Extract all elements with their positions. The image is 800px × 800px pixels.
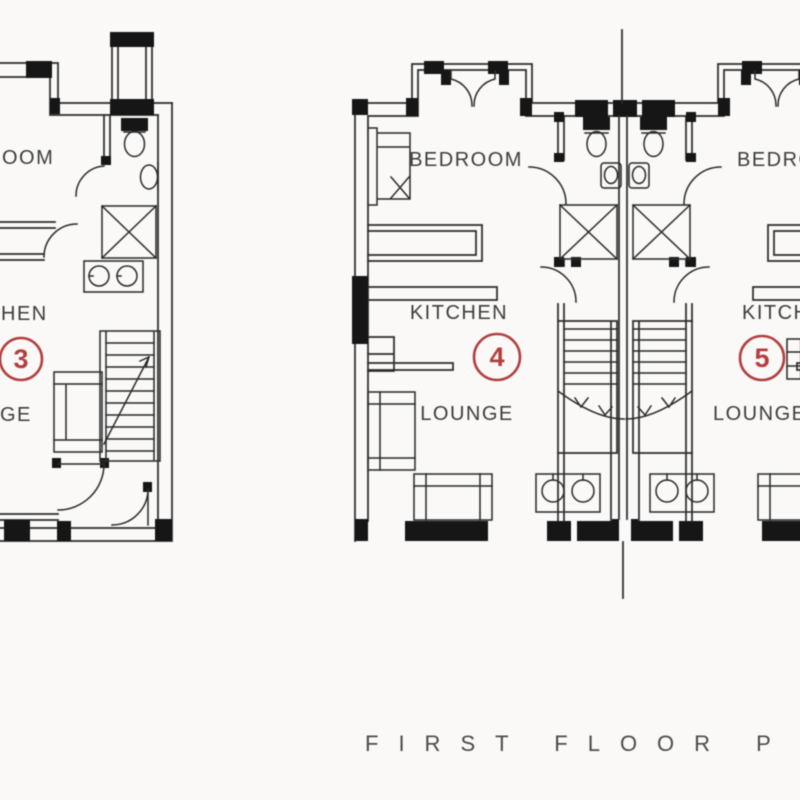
unit3-bedroom-label: OOM xyxy=(2,147,54,169)
unit4-number: 4 xyxy=(489,342,504,372)
unit4-bedroom-label: BEDROOM xyxy=(409,149,523,171)
unit4-kitchen-label: KITCHEN xyxy=(410,302,508,324)
unit3-kitchen-label: HEN xyxy=(1,303,48,325)
unit3-number: 3 xyxy=(13,344,28,374)
first-floor-plan-drawing: OOM HEN GE 3 BEDROOM KI xyxy=(0,0,800,800)
unit5-number: 5 xyxy=(754,343,769,373)
unit5-kitchen-label: KITCHEN xyxy=(742,302,800,324)
unit5-bedroom-label: BEDROOM xyxy=(737,149,800,171)
unit4-lounge-label: LOUNGE xyxy=(420,403,513,425)
drawing-caption: FIRST FLOOR P xyxy=(365,731,791,756)
floor-plan-page: OOM HEN GE 3 BEDROOM KI xyxy=(0,0,800,800)
unit3-lounge-label: GE xyxy=(0,404,32,426)
unit5-lounge-label: LOUNGE xyxy=(713,403,800,425)
